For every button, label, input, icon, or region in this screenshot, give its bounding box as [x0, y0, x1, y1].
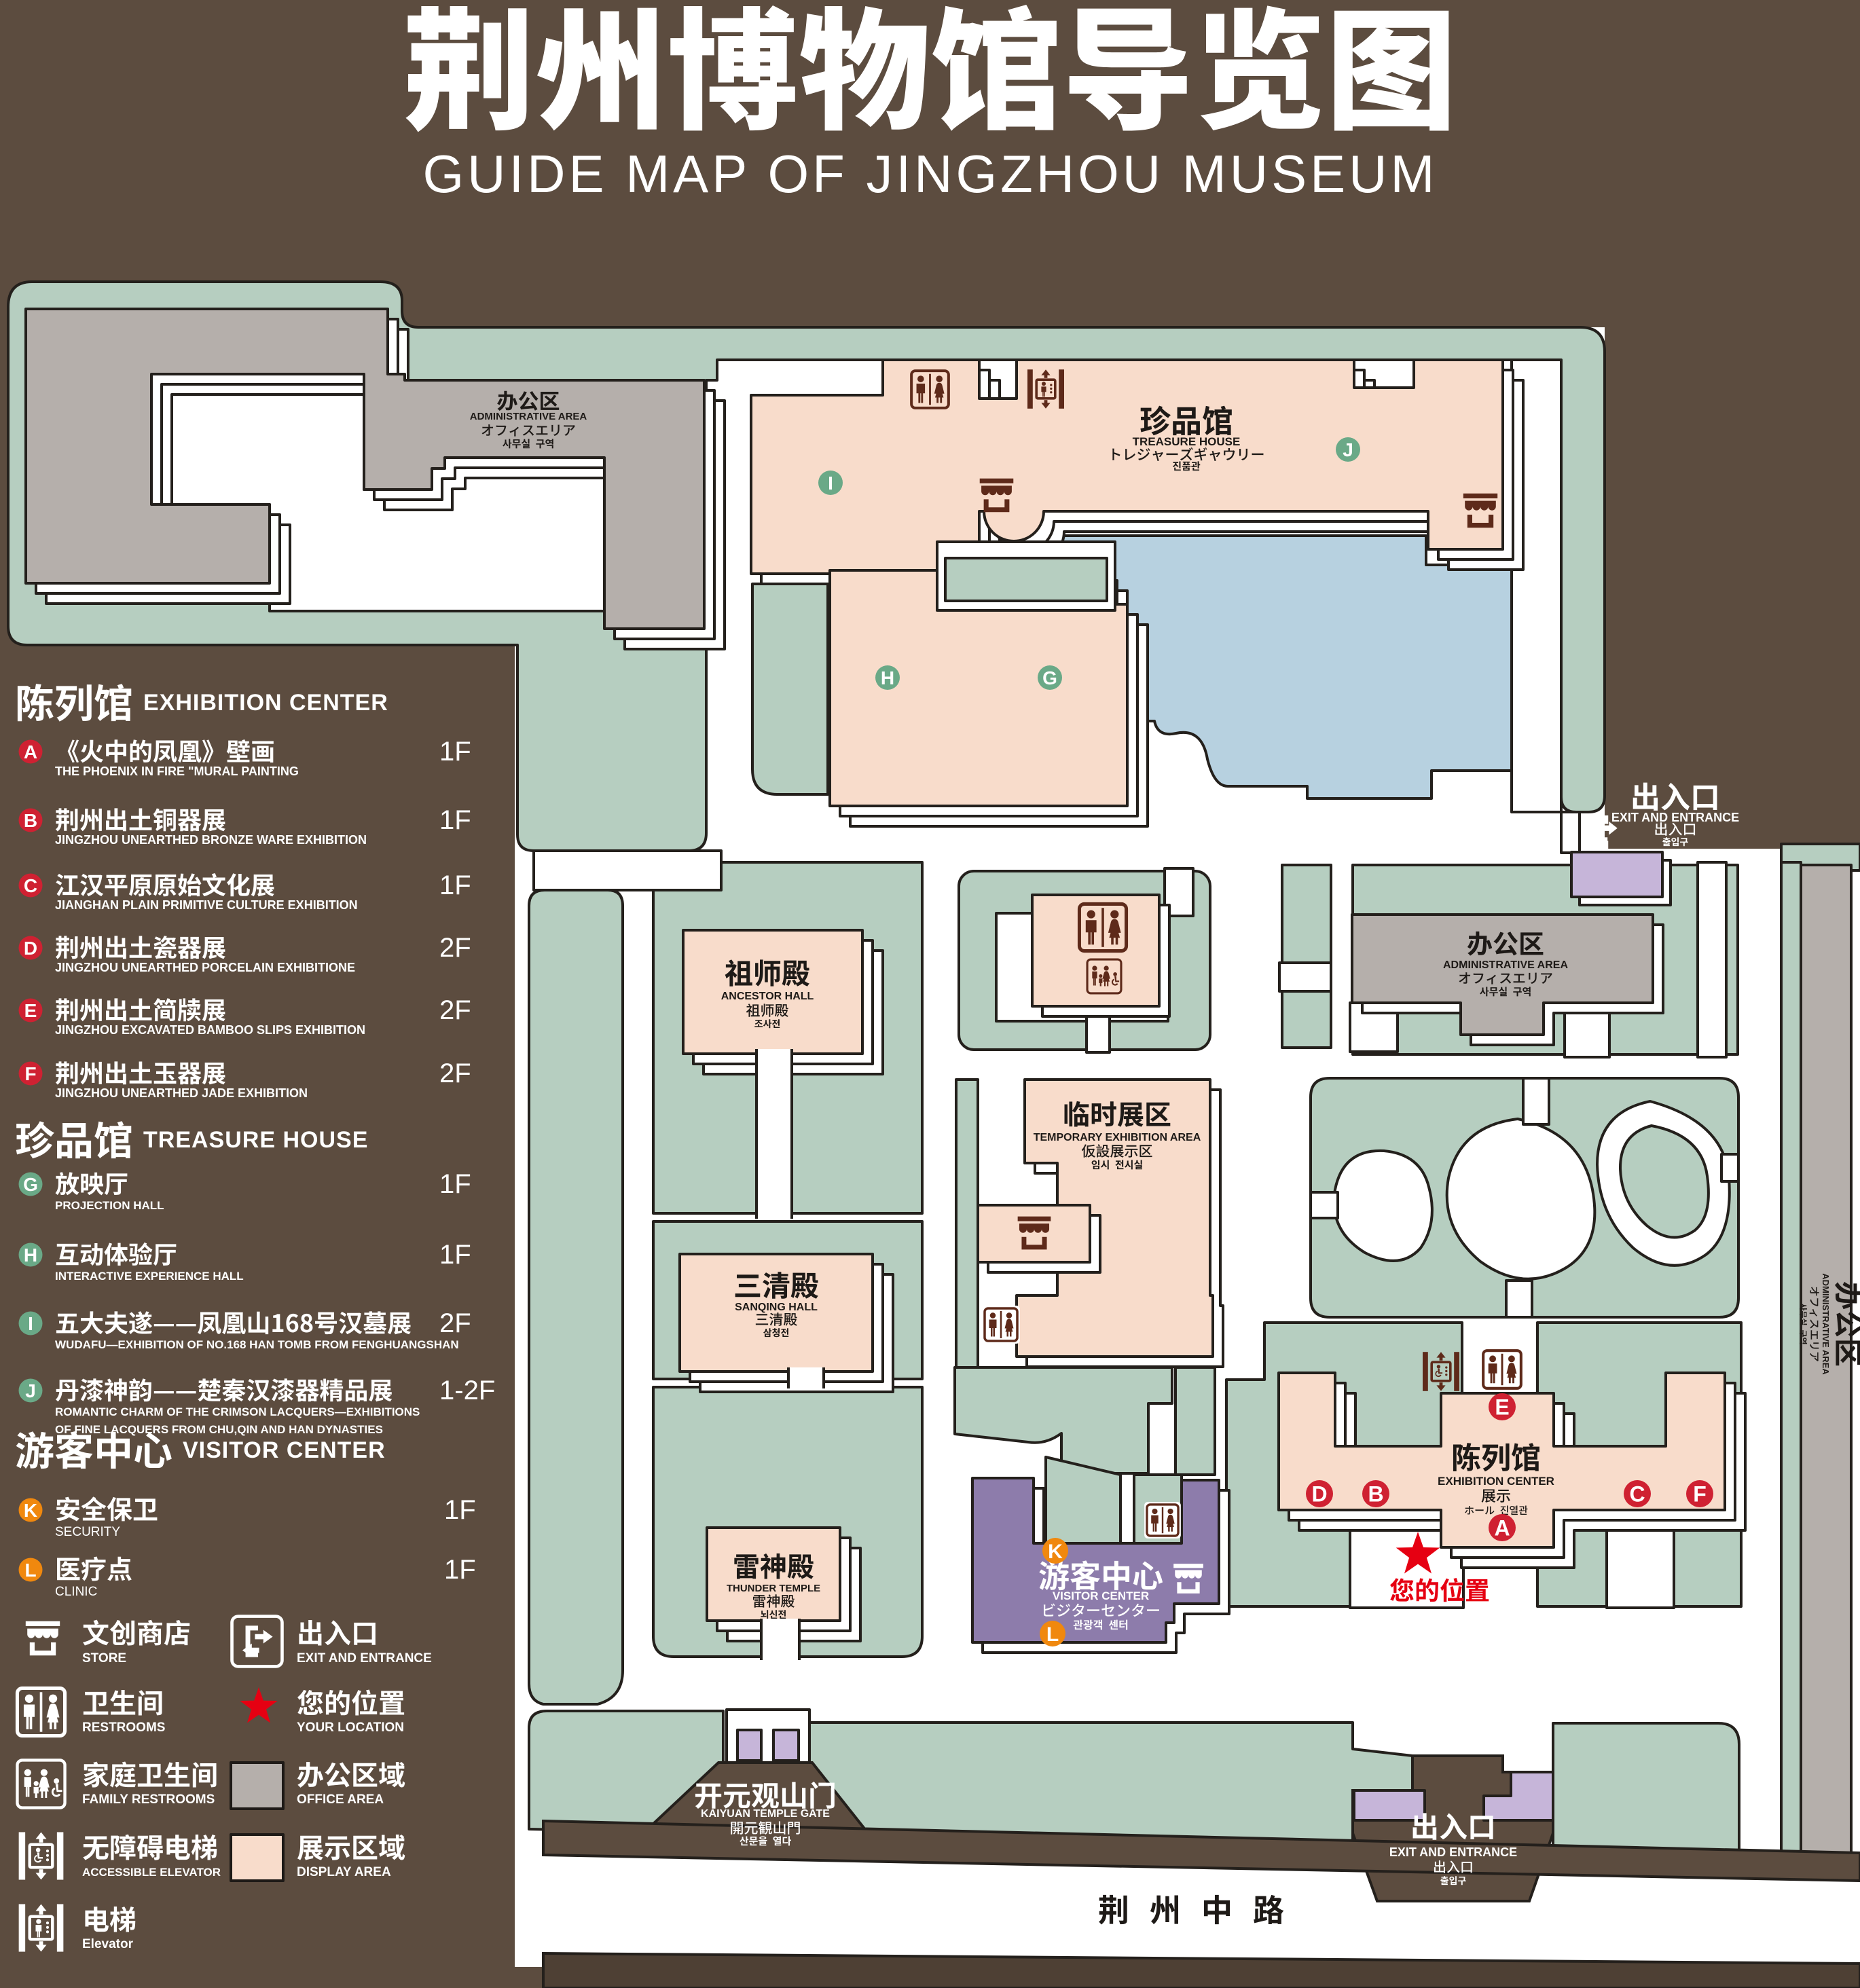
svg-text:L: L — [1046, 1623, 1059, 1646]
svg-text:SECURITY: SECURITY — [55, 1525, 120, 1539]
svg-text:J: J — [1343, 439, 1353, 460]
svg-text:1F: 1F — [444, 1495, 476, 1525]
svg-text:K: K — [1048, 1541, 1063, 1563]
svg-text:A: A — [1494, 1516, 1510, 1541]
svg-text:EXIT AND ENTRANCE: EXIT AND ENTRANCE — [297, 1651, 432, 1665]
svg-text:INTERACTIVE EXPERIENCE HALL: INTERACTIVE EXPERIENCE HALL — [55, 1270, 244, 1283]
svg-text:GUIDE MAP OF JINGZHOU MUSEUM: GUIDE MAP OF JINGZHOU MUSEUM — [423, 144, 1438, 204]
svg-text:THE PHOENIX IN FIRE "MURAL PAI: THE PHOENIX IN FIRE "MURAL PAINTING — [55, 765, 299, 778]
svg-text:EXHIBITION CENTER: EXHIBITION CENTER — [1438, 1475, 1554, 1488]
svg-text:WUDAFU—EXHIBITION OF NO.168 HA: WUDAFU—EXHIBITION OF NO.168 HAN TOMB FRO… — [55, 1338, 459, 1351]
svg-text:YOUR LOCATION: YOUR LOCATION — [297, 1720, 404, 1735]
svg-text:1F: 1F — [439, 1169, 471, 1199]
svg-text:H: H — [881, 667, 894, 688]
svg-text:VISITOR CENTER: VISITOR CENTER — [1053, 1589, 1149, 1602]
svg-text:KAIYUAN TEMPLE GATE: KAIYUAN TEMPLE GATE — [701, 1808, 830, 1820]
svg-text:2F: 2F — [439, 933, 471, 963]
svg-text:C: C — [24, 875, 37, 896]
svg-text:H: H — [24, 1245, 37, 1266]
svg-text:E: E — [1495, 1395, 1509, 1420]
svg-text:JINGZHOU UNEARTHED PORCELAIN E: JINGZHOU UNEARTHED PORCELAIN EXHIBITIONE — [55, 961, 355, 974]
svg-text:1F: 1F — [439, 1240, 471, 1270]
svg-text:THUNDER TEMPLE: THUNDER TEMPLE — [727, 1583, 820, 1594]
svg-text:ACCESSIBLE ELEVATOR: ACCESSIBLE ELEVATOR — [82, 1866, 221, 1879]
svg-text:ANCESTOR HALL: ANCESTOR HALL — [721, 991, 814, 1002]
svg-text:OFFICE AREA: OFFICE AREA — [297, 1792, 384, 1807]
svg-text:ROMANTIC CHARM OF THE CRIMSON: ROMANTIC CHARM OF THE CRIMSON LACQUERS—E… — [55, 1405, 420, 1418]
svg-text:F: F — [24, 1063, 36, 1084]
svg-text:JIANGHAN PLAIN PRIMITIVE CULTU: JIANGHAN PLAIN PRIMITIVE CULTURE EXHIBIT… — [55, 898, 358, 912]
svg-text:EXHIBITION CENTER: EXHIBITION CENTER — [143, 690, 388, 716]
svg-text:B: B — [1368, 1482, 1383, 1507]
svg-text:TEMPORARY EXHIBITION AREA: TEMPORARY EXHIBITION AREA — [1034, 1132, 1201, 1143]
svg-text:SANQING HALL: SANQING HALL — [735, 1302, 818, 1313]
svg-text:G: G — [1042, 667, 1057, 688]
svg-text:D: D — [24, 938, 37, 959]
svg-text:OF FINE LACQUERS FROM CHU,QIN: OF FINE LACQUERS FROM CHU,QIN AND HAN DY… — [55, 1423, 383, 1436]
svg-text:VISITOR CENTER: VISITOR CENTER — [183, 1437, 386, 1463]
svg-text:JINGZHOU EXCAVATED BAMBOO SLIP: JINGZHOU EXCAVATED BAMBOO SLIPS EXHIBITI… — [55, 1023, 365, 1037]
svg-text:J: J — [25, 1380, 36, 1401]
svg-text:C: C — [1629, 1482, 1645, 1507]
svg-text:A: A — [24, 741, 37, 762]
svg-text:PROJECTION HALL: PROJECTION HALL — [55, 1199, 164, 1212]
svg-text:D: D — [1311, 1482, 1327, 1507]
svg-text:1F: 1F — [439, 805, 471, 835]
svg-text:2F: 2F — [439, 995, 471, 1025]
svg-text:STORE: STORE — [82, 1651, 126, 1665]
svg-text:1F: 1F — [439, 870, 471, 900]
svg-text:L: L — [24, 1560, 36, 1581]
svg-text:2F: 2F — [439, 1308, 471, 1338]
svg-text:CLINIC: CLINIC — [55, 1585, 97, 1599]
svg-text:I: I — [828, 473, 833, 494]
svg-text:TREASURE HOUSE: TREASURE HOUSE — [1133, 435, 1241, 448]
svg-text:B: B — [24, 810, 37, 831]
svg-text:K: K — [24, 1500, 37, 1521]
svg-text:JINGZHOU UNEARTHED BRONZE WARE: JINGZHOU UNEARTHED BRONZE WARE EXHIBITIO… — [55, 833, 367, 847]
svg-text:I: I — [28, 1313, 33, 1334]
svg-text:G: G — [23, 1174, 38, 1195]
svg-text:E: E — [24, 1000, 37, 1021]
svg-text:JINGZHOU UNEARTHED JADE EXHIBI: JINGZHOU UNEARTHED JADE EXHIBITION — [55, 1086, 308, 1100]
svg-text:DISPLAY AREA: DISPLAY AREA — [297, 1865, 391, 1879]
svg-text:RESTROOMS: RESTROOMS — [82, 1720, 165, 1735]
svg-text:ADMINISTRATIVE AREA: ADMINISTRATIVE AREA — [1821, 1273, 1831, 1375]
svg-text:1-2F: 1-2F — [439, 1376, 495, 1405]
svg-text:Elevator: Elevator — [82, 1937, 134, 1951]
svg-text:FAMILY RESTROOMS: FAMILY RESTROOMS — [82, 1792, 215, 1807]
svg-text:F: F — [1693, 1482, 1707, 1507]
svg-text:ADMINISTRATIVE AREA: ADMINISTRATIVE AREA — [1443, 959, 1568, 971]
svg-text:1F: 1F — [444, 1555, 476, 1585]
svg-text:2F: 2F — [439, 1059, 471, 1088]
svg-text:1F: 1F — [439, 737, 471, 767]
svg-text:TREASURE HOUSE: TREASURE HOUSE — [143, 1127, 368, 1153]
svg-text:ADMINISTRATIVE AREA: ADMINISTRATIVE AREA — [470, 411, 587, 422]
svg-text:EXIT AND ENTRANCE: EXIT AND ENTRANCE — [1611, 811, 1739, 824]
svg-text:EXIT AND ENTRANCE: EXIT AND ENTRANCE — [1389, 1845, 1517, 1859]
